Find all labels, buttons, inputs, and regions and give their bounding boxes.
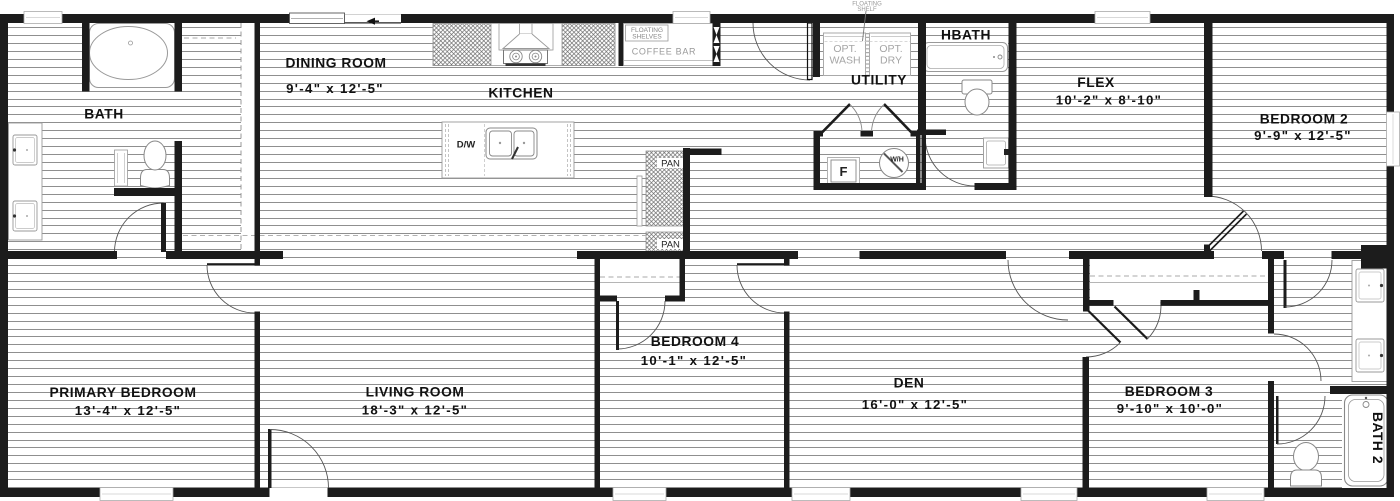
- svg-text:D/W: D/W: [457, 140, 476, 151]
- svg-text:SHELF: SHELF: [857, 7, 877, 13]
- svg-text:BATH 2: BATH 2: [1370, 412, 1385, 464]
- svg-text:18'-3" x 12'-5": 18'-3" x 12'-5": [362, 403, 468, 418]
- svg-text:PAN: PAN: [661, 159, 680, 170]
- svg-text:COFFEE BAR: COFFEE BAR: [632, 47, 697, 57]
- svg-text:BATH: BATH: [84, 107, 124, 122]
- svg-text:DEN: DEN: [894, 376, 925, 391]
- svg-text:OPT.: OPT.: [879, 43, 902, 55]
- svg-text:SHELVES: SHELVES: [632, 34, 662, 41]
- svg-text:OPT.: OPT.: [833, 43, 856, 55]
- svg-text:PRIMARY BEDROOM: PRIMARY BEDROOM: [50, 385, 197, 400]
- svg-text:LIVING ROOM: LIVING ROOM: [366, 385, 465, 400]
- svg-text:10'-2" x 8'-10": 10'-2" x 8'-10": [1056, 93, 1162, 108]
- svg-text:FLEX: FLEX: [1077, 75, 1115, 90]
- svg-text:9'-9" x 12'-5": 9'-9" x 12'-5": [1254, 128, 1352, 143]
- svg-text:DINING ROOM: DINING ROOM: [285, 56, 386, 71]
- svg-text:BEDROOM 3: BEDROOM 3: [1125, 384, 1214, 399]
- svg-text:10'-1" x 12'-5": 10'-1" x 12'-5": [641, 353, 747, 368]
- svg-text:UTILITY: UTILITY: [851, 73, 907, 88]
- svg-text:9'-4" x 12'-5": 9'-4" x 12'-5": [286, 81, 384, 96]
- svg-text:HBATH: HBATH: [941, 28, 991, 43]
- svg-text:13'-4" x 12'-5": 13'-4" x 12'-5": [75, 403, 181, 418]
- svg-text:F: F: [840, 164, 848, 179]
- svg-text:W/H: W/H: [890, 157, 904, 164]
- svg-text:BEDROOM 4: BEDROOM 4: [651, 334, 740, 349]
- svg-text:16'-0" x 12'-5": 16'-0" x 12'-5": [862, 397, 968, 412]
- svg-text:DRY: DRY: [880, 55, 902, 67]
- svg-text:WASH: WASH: [829, 55, 860, 67]
- svg-text:PAN: PAN: [661, 240, 680, 251]
- svg-text:9'-10" x 10'-0": 9'-10" x 10'-0": [1117, 401, 1223, 416]
- svg-text:BEDROOM 2: BEDROOM 2: [1260, 112, 1349, 127]
- svg-text:KITCHEN: KITCHEN: [488, 86, 553, 101]
